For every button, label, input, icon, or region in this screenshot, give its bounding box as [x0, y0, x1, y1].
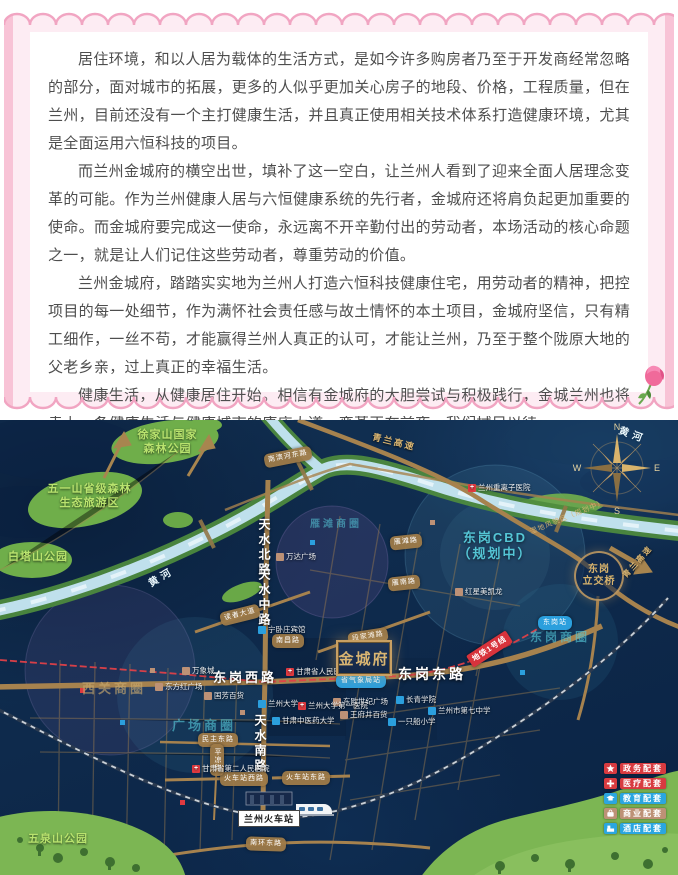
paragraph-2: 而兰州金城府的横空出世，填补了这一空白，让兰州人看到了迎来全面人居理念变革的可能…: [48, 158, 630, 270]
poi-heavy-ion-hospital: +兰州重离子医院: [468, 482, 531, 494]
park-label-baitashan: 白塔山公园: [8, 550, 68, 564]
district-label-donggang-cbd: 东岗CBD （规划中）: [445, 530, 545, 562]
poi-dongfanghong-square: 东方红广场: [155, 681, 203, 693]
school-icon: [428, 707, 436, 715]
poi-gansu-tcm-university: 甘肃中医药大学: [272, 715, 335, 727]
hospital-icon: +: [468, 484, 476, 492]
poi-wanda-plaza: 万达广场: [276, 551, 316, 563]
legend-row-commercial: 商业配套: [604, 808, 666, 819]
school-icon: [388, 718, 396, 726]
park-label-wuyishan: 五一山省级森林 生态旅游区: [32, 482, 147, 510]
mall-icon: [182, 667, 190, 675]
district-label-xiguan: 西关商圈: [82, 683, 146, 695]
paragraph-3: 兰州金城府，踏踏实实地为兰州人打造六恒科技健康住宅，用劳动者的精神，把控项目的每…: [48, 270, 630, 382]
svg-text:W: W: [573, 463, 582, 473]
road-label-tianshui-middle: 天水中路: [258, 568, 270, 628]
district-label-donggang: 东岗商圈: [530, 631, 590, 643]
legend-row-education: 教育配套: [604, 793, 666, 804]
poi-no7-middle-school: 兰州市第七中学: [428, 705, 491, 717]
mall-icon: [204, 692, 212, 700]
school-icon: [272, 717, 280, 725]
mall-icon: [455, 588, 463, 596]
road-label-donggang-east: 东岗东路: [398, 668, 466, 680]
district-label-guangchang: 广场商圈: [172, 720, 236, 732]
svg-text:S: S: [614, 506, 620, 516]
poi-lanzhou-university: 兰州大学: [258, 698, 298, 710]
poi-changqing-college: 长青学院: [396, 694, 436, 706]
road-pill-nanchang: 南昌路: [272, 634, 304, 648]
park-label-xujiashan: 徐家山国家 森林公园: [120, 428, 215, 456]
legend-row-medical: 医疗配套: [604, 778, 666, 789]
paragraph-1: 居住环境，和以人居为载体的生活方式，是如今许多购房者乃至于开发商经常忽略的部分，…: [48, 46, 630, 158]
location-map: N S W E 徐家山国家 森林公园: [0, 420, 678, 875]
article-card: 居住环境，和以人居为载体的生活方式，是如今许多购房者乃至于开发商经常忽略的部分，…: [30, 32, 648, 392]
park-label-wuquanshan: 五泉山公园: [28, 832, 88, 846]
district-label-yantan: 雁滩商圈: [310, 519, 362, 531]
bag-icon: [604, 808, 617, 819]
mall-icon: [155, 683, 163, 691]
page: { "article": { "paragraphs": [ "居住环境，和以人…: [0, 0, 678, 875]
svg-text:E: E: [654, 463, 660, 473]
road-pill-nanhuan-east: 南环东路: [246, 836, 286, 851]
legend-row-government: 政务配套: [604, 763, 666, 774]
poi-hongxing-meikailong: 红星美凯龙: [455, 586, 503, 598]
hospital-icon: +: [286, 668, 294, 676]
article-body: 居住环境，和以人居为载体的生活方式，是如今许多购房者乃至于开发商经常忽略的部分，…: [30, 32, 648, 446]
legend-row-hotel: 酒店配套: [604, 823, 666, 834]
poi-guofang-dept: 国芳百货: [204, 690, 244, 702]
metro-station-donggang: 东岗站: [538, 616, 572, 630]
project-plaque: 金城府: [336, 640, 392, 676]
cross-icon: [604, 778, 617, 789]
hotel-building-icon: [604, 823, 617, 834]
graduation-cap-icon: [604, 793, 617, 804]
poi-ningwozhuang-hotel: 宁卧庄宾馆: [258, 624, 306, 636]
poi-lzu-first-hospital: +兰州大学第一医院: [298, 700, 368, 712]
scallop-top-border: [4, 6, 674, 30]
hospital-icon: +: [192, 765, 200, 773]
scallop-bottom-border: [4, 392, 674, 416]
map-legend: 政务配套 医疗配套 教育配套 商业配套 酒店配套: [604, 763, 666, 834]
poi-yizhichuan-primary: 一只船小学: [388, 716, 436, 728]
article-panel: 居住环境，和以人居为载体的生活方式，是如今许多购房者乃至于开发商经常忽略的部分，…: [4, 8, 674, 414]
mall-icon: [340, 711, 348, 719]
school-icon: [258, 700, 266, 708]
interchange-badge: 东岗 立交桥: [574, 551, 624, 601]
mall-icon: [276, 553, 284, 561]
road-pill-station-east: 火车站东路: [282, 771, 330, 785]
railway-station-label: 兰州火车站: [238, 810, 300, 827]
star-icon: [604, 763, 617, 774]
school-icon: [396, 696, 404, 704]
poi-wanxiangcheng: 万象城: [182, 665, 215, 677]
hill-shapes: [0, 770, 678, 875]
hospital-icon: +: [298, 702, 306, 710]
poi-gansu-second-hospital: +甘肃省第二人民医院: [192, 763, 270, 775]
road-label-donggang-west: 东岗西路: [213, 672, 277, 684]
rose-icon: [637, 364, 671, 410]
hotel-icon: [258, 626, 266, 634]
train-station-building: [246, 792, 292, 805]
